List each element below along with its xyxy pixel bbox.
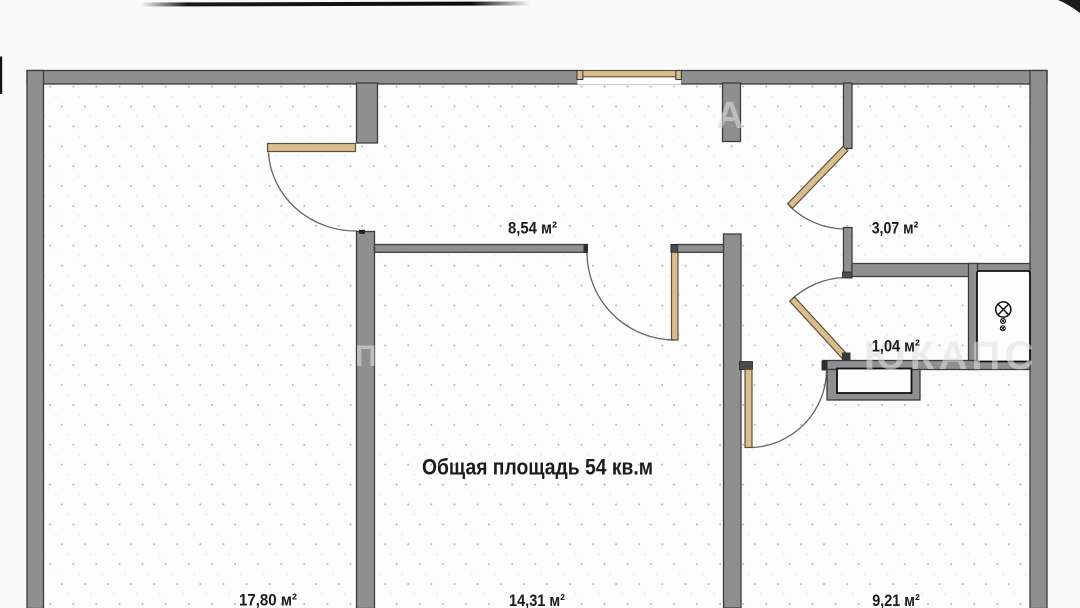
- svg-text:1,04 м²: 1,04 м²: [872, 337, 920, 356]
- svg-text:14,31 м²: 14,31 м²: [509, 591, 565, 608]
- svg-text:А: А: [716, 95, 743, 137]
- svg-text:17,80 м²: 17,80 м²: [239, 591, 297, 608]
- svg-text:Общая площадь 54 кв.м: Общая площадь 54 кв.м: [422, 455, 653, 480]
- svg-text:8,54 м²: 8,54 м²: [508, 219, 557, 238]
- svg-text:3,07 м²: 3,07 м²: [872, 218, 919, 237]
- svg-text:9,21 м²: 9,21 м²: [872, 591, 920, 608]
- svg-text:П: П: [355, 340, 377, 373]
